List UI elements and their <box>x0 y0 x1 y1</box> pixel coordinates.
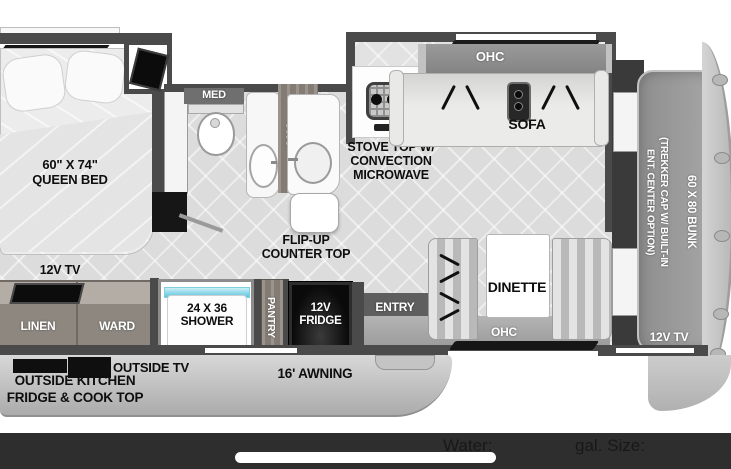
pillow <box>63 49 127 106</box>
kitchen-sink-icon <box>294 142 332 184</box>
shower-label: 24 X 36 SHOWER <box>178 302 236 329</box>
closet <box>152 192 187 232</box>
console-cupholder <box>514 102 523 111</box>
toilet-flush-button <box>210 118 220 128</box>
trekker-cap-label: (TREKKER CAP W/ BUILT-IN ENT. CENTER OPT… <box>643 92 670 312</box>
flip-up-counter-label: FLIP-UP COUNTER TOP <box>256 233 356 261</box>
flip-up-counter <box>290 193 339 233</box>
kitchen-faucet-icon <box>288 158 298 161</box>
window-strip <box>448 351 598 356</box>
dinette-ohc-label: OHC <box>484 326 524 339</box>
bed-tv-label: 12V TV <box>28 263 92 277</box>
wardrobe-slab <box>164 90 188 194</box>
burner-icon <box>371 94 382 105</box>
pillow <box>1 52 68 114</box>
sofa-armrest <box>389 70 404 146</box>
med-cabinet-label: MED <box>184 89 244 101</box>
shower-pantry-wall <box>254 279 261 353</box>
entry-step <box>375 355 435 370</box>
cap-hinge-knob <box>713 308 729 320</box>
fridge-entry-wall <box>352 282 364 352</box>
dinette-label: DINETTE <box>478 280 556 296</box>
console-cupholder <box>514 90 523 99</box>
dinette-bench <box>428 238 478 340</box>
rv-floorplan: TREKKER SEAT 60" X 74" QUEEN BED MED OHC… <box>0 0 731 469</box>
sofa-armrest <box>594 70 609 146</box>
status-bar: Water: gal. Size: <box>0 433 731 469</box>
cap-hinge-knob <box>712 74 728 86</box>
linen-label: LINEN <box>6 320 70 333</box>
window-strip <box>205 348 297 353</box>
cabinet-tv-icon <box>9 283 84 304</box>
cap-hinge-knob <box>714 230 730 242</box>
pantry-label: PANTRY <box>264 288 276 346</box>
awning-label: 16' AWNING <box>266 366 364 381</box>
dinette-table <box>486 234 550 318</box>
front-tv-label: 12V TV <box>642 331 696 344</box>
sofa <box>392 73 606 147</box>
bath-faucet-icon <box>271 161 277 164</box>
outside-kitchen-label: OUTSIDE KITCHEN FRIDGE & COOK TOP <box>0 373 150 407</box>
size-label: gal. Size: <box>575 436 645 456</box>
scrollbar-thumb[interactable] <box>235 452 496 463</box>
outside-kitchen-hatch <box>13 359 67 373</box>
bath-sink-icon <box>249 144 278 188</box>
window-strip <box>616 348 694 353</box>
cap-lower-wedge <box>648 355 731 411</box>
cap-rim <box>702 42 731 382</box>
bunk-label: 60 X 80 BUNK <box>684 150 697 274</box>
fridge-label: 12V FRIDGE <box>289 302 352 328</box>
top-clipped-label: TREKKER SEAT <box>448 0 564 3</box>
sofa-ohc-label: OHC <box>430 50 550 65</box>
ward-label: WARD <box>86 320 148 333</box>
dinette-tv-icon <box>449 341 599 350</box>
queen-bed-label: 60" X 74" QUEEN BED <box>0 158 140 187</box>
cap-hinge-knob <box>714 152 730 164</box>
dinette-bench <box>552 238 612 340</box>
entry-label: ENTRY <box>364 301 426 314</box>
sofa-label: SOFA <box>490 117 564 133</box>
